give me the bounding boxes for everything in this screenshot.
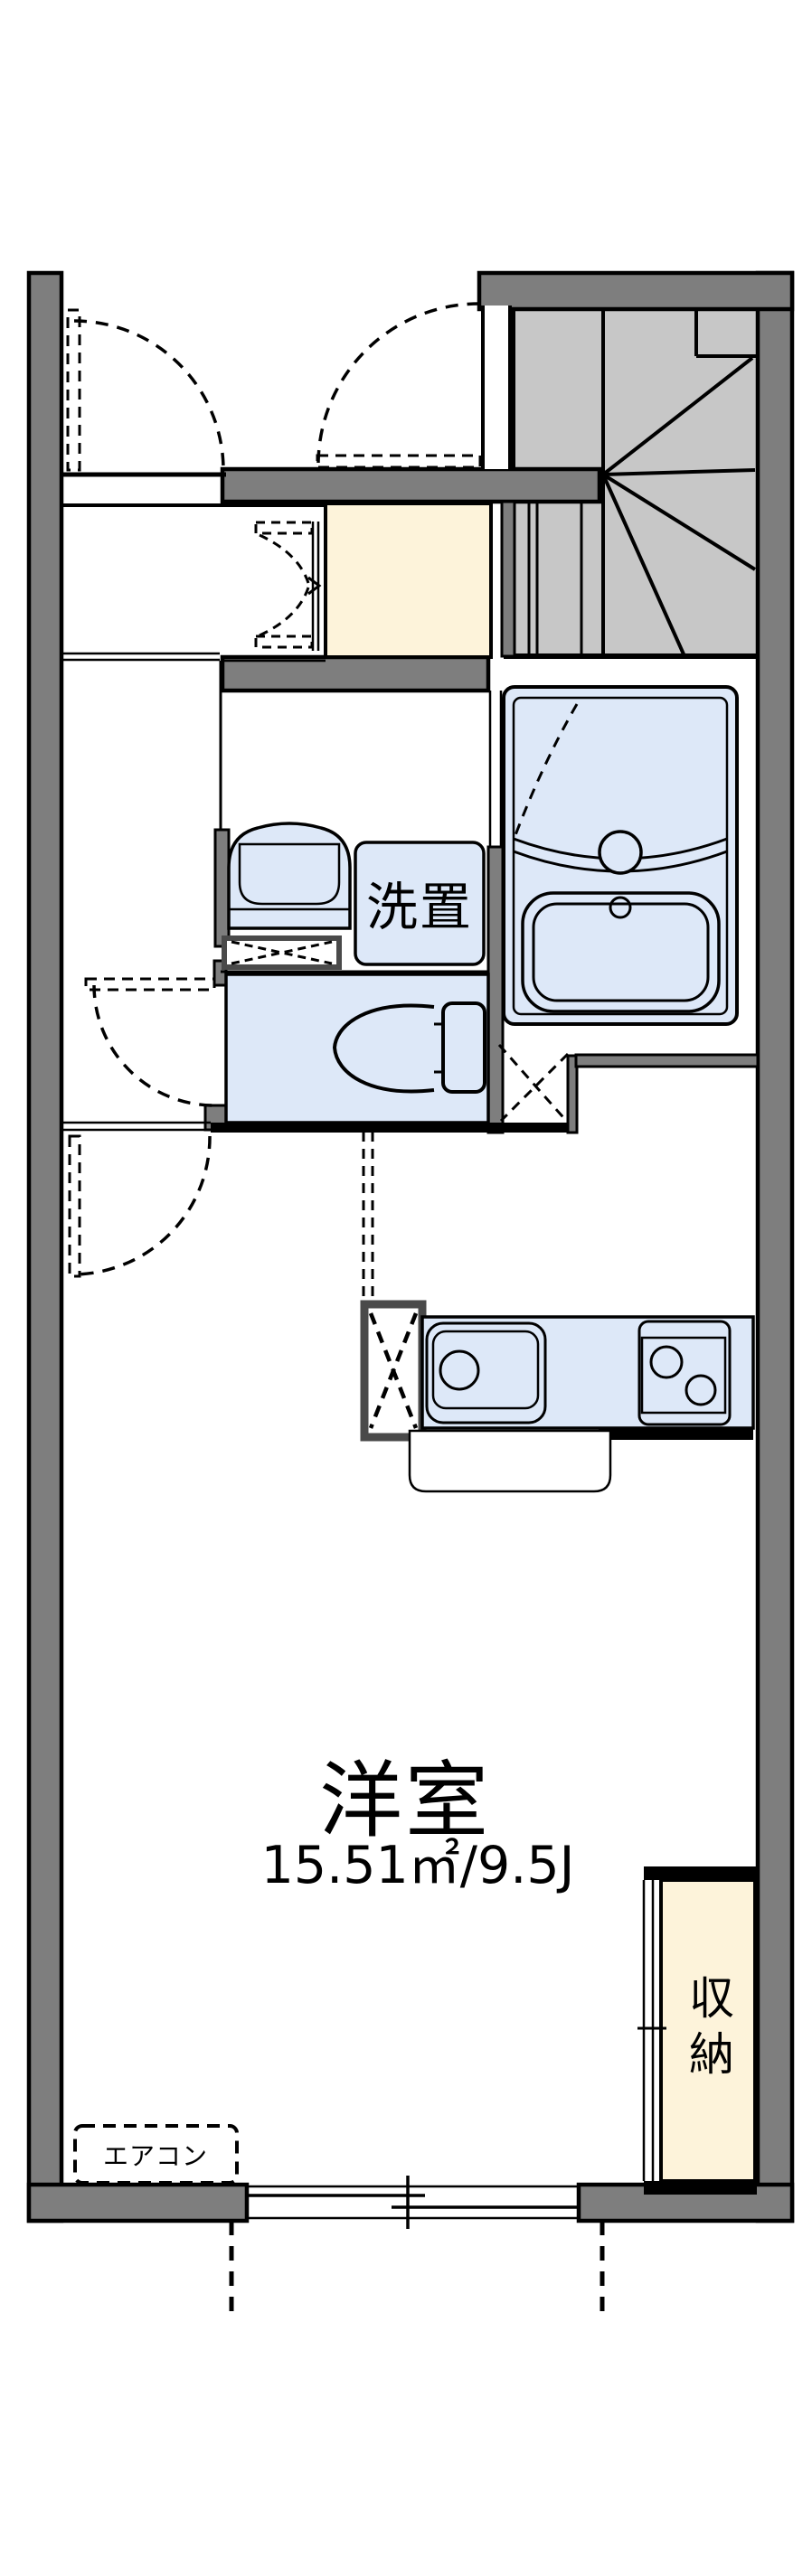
balcony-window	[247, 2176, 579, 2229]
wall-bottom-left	[29, 2185, 247, 2221]
kitchen-counter	[422, 1317, 753, 1428]
main-room-door-leaf	[70, 1136, 80, 1276]
wall-bath-divider	[488, 847, 503, 1133]
bath-faucet	[600, 832, 641, 873]
refrigerator-space	[364, 1304, 422, 1437]
wall-under-counter	[599, 1428, 753, 1440]
wall-entrance-band	[222, 469, 600, 502]
shoe-closet-door	[256, 522, 319, 651]
toilet-door-arc	[94, 985, 214, 1105]
wall-top-stairs	[479, 273, 792, 309]
genkan-tile	[326, 503, 491, 657]
toilet-room	[86, 974, 488, 1123]
wall-left	[29, 273, 61, 2221]
porch-closet-door-arc	[74, 321, 223, 470]
main-room-door-arc	[72, 1136, 210, 1274]
porch-closet-door-leaf	[68, 310, 80, 470]
storage-label: 収納	[675, 1974, 741, 2086]
wall-washbasin-side	[215, 830, 229, 946]
wall-under-genkan	[222, 657, 488, 691]
entrance-door-leaf	[317, 456, 480, 467]
balcony-extent-lines	[231, 2221, 602, 2314]
main-room-door	[70, 1136, 210, 1276]
wall-storage-bottom	[644, 2181, 757, 2195]
aircon-label: エアコン	[103, 2137, 208, 2173]
washstand-label: 洗置	[366, 866, 473, 940]
main-room-area: 15.51㎡/9.5J	[261, 1824, 575, 1898]
washing-machine-pan	[224, 938, 339, 967]
washbasin	[229, 823, 350, 928]
floorplan-svg	[0, 0, 812, 2576]
floorplan-page: 洋室 15.51㎡/9.5J 洗置 収納 エアコン	[0, 0, 812, 2576]
wall-under-stairs	[502, 502, 515, 656]
wall-right	[758, 273, 792, 2221]
toilet-door-leaf	[86, 979, 214, 990]
wall-bath-bottom-band	[576, 1055, 758, 1067]
utility-space-x	[499, 1045, 568, 1123]
counter-cabinet	[410, 1431, 610, 1491]
entrance-door-arc	[318, 304, 479, 463]
wall-storage-top	[644, 1866, 757, 1880]
